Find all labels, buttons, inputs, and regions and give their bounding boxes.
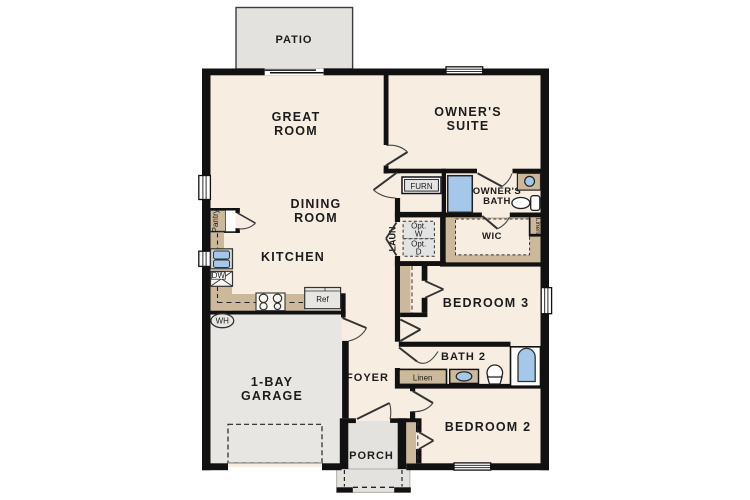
svg-text:BATH: BATH bbox=[483, 196, 511, 207]
svg-text:DINING: DINING bbox=[291, 197, 342, 211]
svg-text:FOYER: FOYER bbox=[346, 372, 389, 384]
svg-text:PATIO: PATIO bbox=[276, 34, 313, 46]
svg-text:D: D bbox=[416, 248, 422, 257]
svg-text:Ref: Ref bbox=[316, 295, 329, 304]
svg-text:ROOM: ROOM bbox=[294, 211, 338, 225]
svg-text:BEDROOM 2: BEDROOM 2 bbox=[445, 420, 532, 434]
svg-text:OWNER'S: OWNER'S bbox=[434, 105, 502, 119]
svg-text:GARAGE: GARAGE bbox=[241, 389, 303, 403]
svg-text:W: W bbox=[415, 230, 423, 239]
svg-text:SUITE: SUITE bbox=[447, 119, 490, 133]
svg-text:Linen: Linen bbox=[534, 218, 541, 234]
svg-text:GREAT: GREAT bbox=[272, 110, 321, 124]
svg-text:FURN: FURN bbox=[410, 182, 432, 191]
svg-text:1-BAY: 1-BAY bbox=[251, 375, 293, 389]
svg-text:WH: WH bbox=[216, 317, 230, 326]
svg-text:BATH 2: BATH 2 bbox=[441, 351, 486, 363]
svg-text:Linen: Linen bbox=[413, 374, 433, 383]
svg-text:Pantry: Pantry bbox=[211, 209, 220, 232]
svg-text:DW: DW bbox=[212, 271, 226, 280]
svg-text:BEDROOM 3: BEDROOM 3 bbox=[443, 296, 530, 310]
svg-text:WIC: WIC bbox=[482, 231, 502, 242]
svg-text:ROOM: ROOM bbox=[274, 124, 318, 138]
svg-text:PORCH: PORCH bbox=[349, 450, 394, 462]
svg-text:KITCHEN: KITCHEN bbox=[261, 250, 325, 264]
